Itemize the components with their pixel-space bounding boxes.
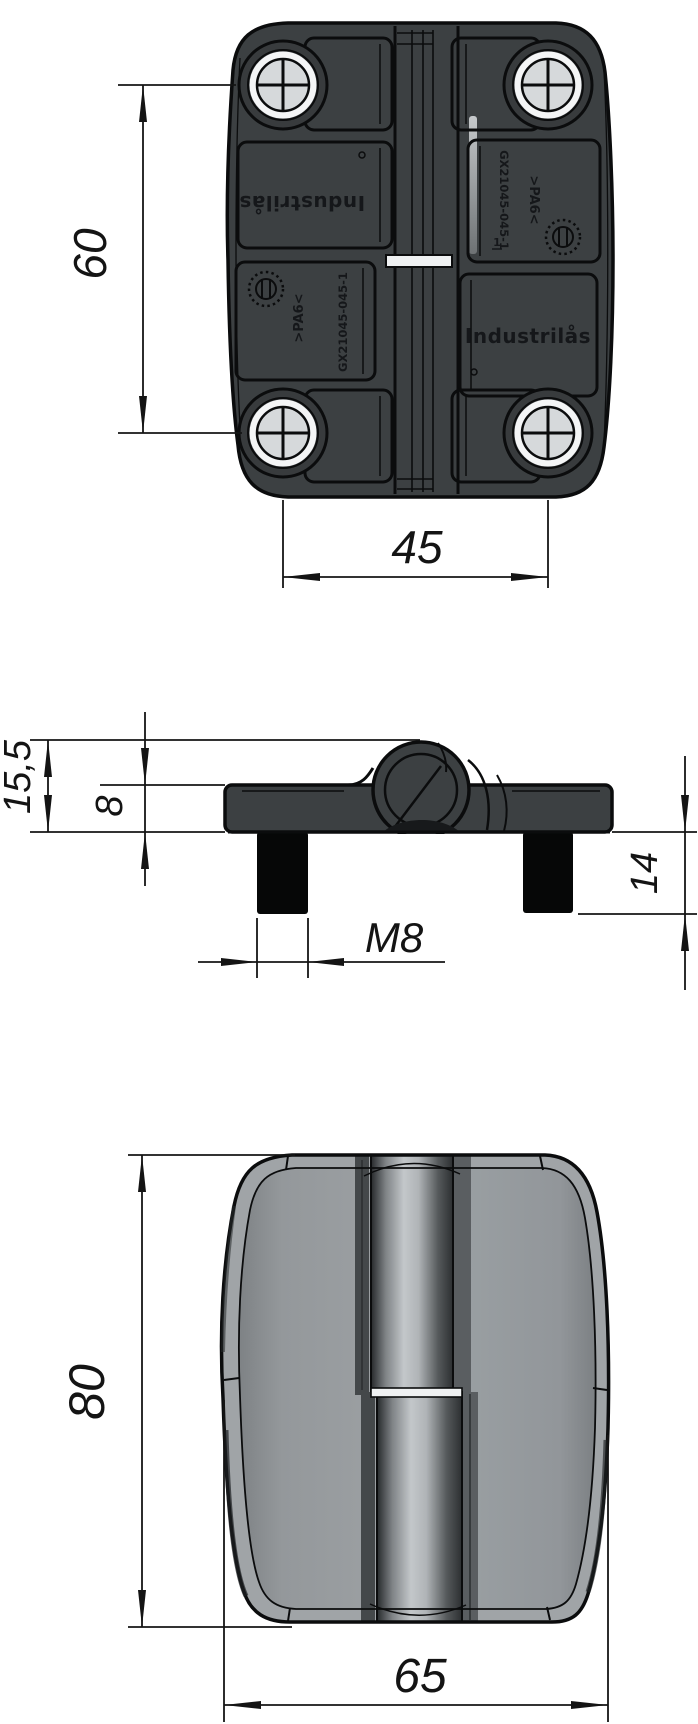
stud-right xyxy=(523,832,573,913)
bottom-view-barrel xyxy=(355,1150,478,1627)
dim-8-label: 8 xyxy=(89,795,131,816)
dim-60: 60 xyxy=(64,85,242,433)
dim-m8: M8 xyxy=(198,914,445,978)
brand-text-reversed: Industrilås xyxy=(239,191,365,215)
seam-edge-highlight xyxy=(469,116,477,254)
screw-top-left xyxy=(239,41,327,129)
hinge-gap-highlight xyxy=(386,255,452,267)
screw-bottom-right xyxy=(504,389,592,477)
dim-8: 8 xyxy=(89,712,225,886)
side-view xyxy=(225,742,612,914)
material-mark-right: >PA6< xyxy=(526,175,541,224)
part-code-left: GX21045-045-1 xyxy=(336,272,350,372)
dim-60-label: 60 xyxy=(64,228,116,280)
top-view: Industrilås Industrilås >PA6< GX21045-04… xyxy=(227,23,613,497)
dim-80-label: 80 xyxy=(59,1364,115,1420)
barrel-gap-highlight xyxy=(371,1388,462,1397)
stud-left xyxy=(257,832,308,914)
dim-45-label: 45 xyxy=(391,521,443,573)
barrel-upper xyxy=(371,1150,453,1392)
brand-text: Industrilås xyxy=(465,324,591,348)
dim-45: 45 xyxy=(283,500,548,588)
dim-14-label: 14 xyxy=(624,852,666,894)
hinge-drawing: Industrilås Industrilås >PA6< GX21045-04… xyxy=(0,0,698,1724)
screw-bottom-left xyxy=(239,389,327,477)
material-mark-left: >PA6< xyxy=(292,293,307,342)
dim-m8-label: M8 xyxy=(365,914,424,961)
barrel-lower xyxy=(377,1392,462,1627)
cavity-mark: 1 xyxy=(493,236,501,249)
bottom-view xyxy=(221,1150,608,1627)
dim-65-label: 65 xyxy=(393,1650,447,1703)
part-code-right: GX21045-045-1 xyxy=(497,150,511,250)
screw-top-right xyxy=(504,41,592,129)
drawing-canvas: Industrilås Industrilås >PA6< GX21045-04… xyxy=(0,0,698,1724)
dim-15-5-label: 15,5 xyxy=(0,739,39,814)
